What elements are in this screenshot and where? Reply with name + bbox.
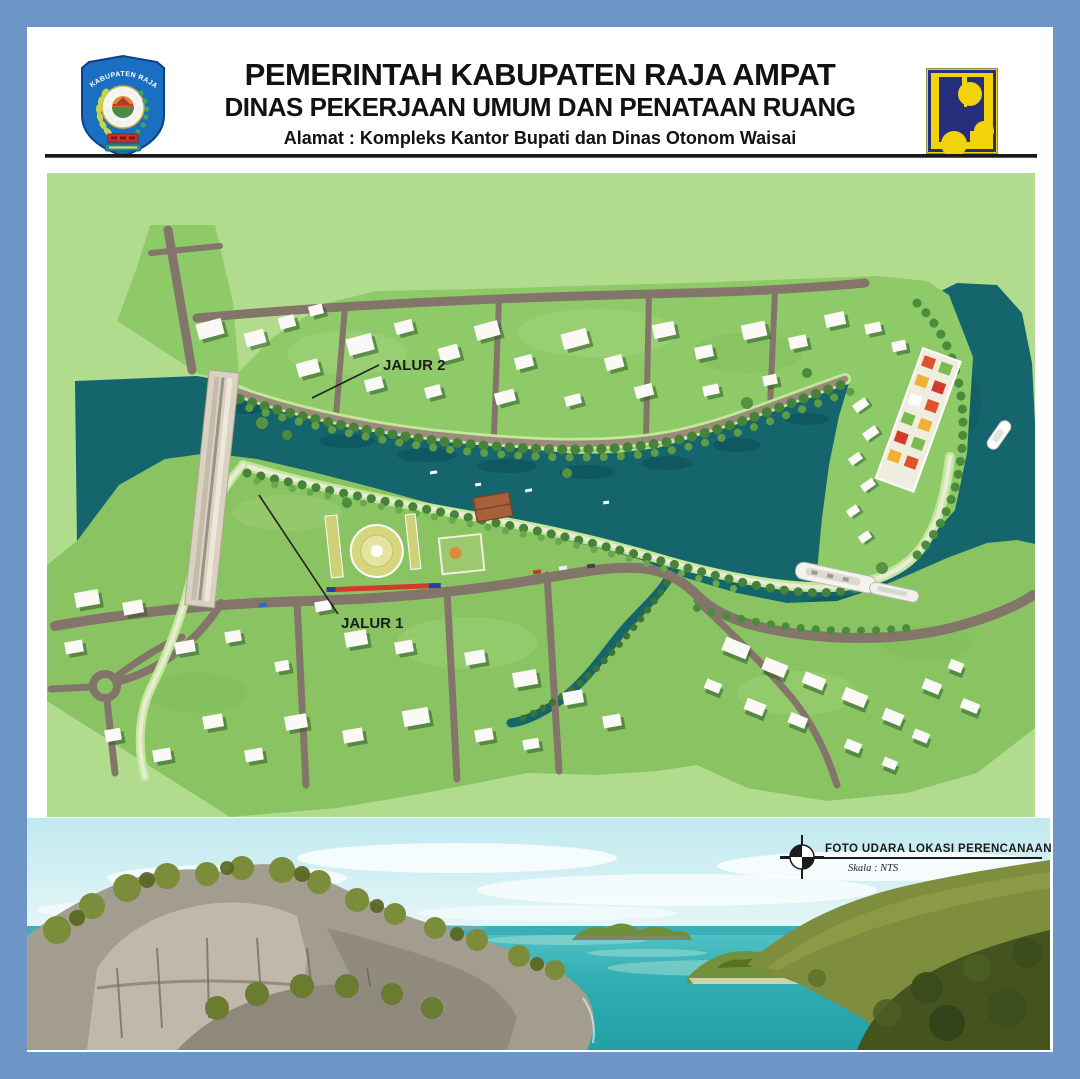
survey-point-icon (780, 835, 824, 879)
pu-ministry-logo (926, 68, 998, 154)
map-label-jalur-1: JALUR 1 (341, 615, 404, 632)
letterhead-titles: PEMERINTAH KABUPATEN RAJA AMPAT DINAS PE… (177, 58, 903, 149)
agency-title: PEMERINTAH KABUPATEN RAJA AMPAT (177, 58, 903, 91)
agency-subtitle: DINAS PEKERJAAN UMUM DAN PENATAAN RUANG (177, 93, 903, 121)
page-frame: KABUPATEN RAJA AMPAT (0, 0, 1080, 1079)
agency-address: Alamat : Kompleks Kantor Bupati dan Dina… (177, 128, 903, 149)
caption-title: FOTO UDARA LOKASI PERENCANAAN (825, 843, 1052, 855)
photo-caption: FOTO UDARA LOKASI PERENCANAAN Skala : NT… (27, 818, 1050, 1050)
document-sheet: KABUPATEN RAJA AMPAT (27, 27, 1053, 1052)
site-plan-render: JALUR 2 JALUR 1 (47, 173, 1035, 817)
pavilion (473, 492, 513, 522)
caption-scale: Skala : NTS (848, 863, 898, 874)
site-plan-map: JALUR 2 JALUR 1 (47, 173, 1035, 817)
raja-ampat-seal-logo: KABUPATEN RAJA AMPAT (77, 53, 169, 159)
header-rule (45, 154, 1037, 158)
map-label-jalur-2: JALUR 2 (383, 357, 446, 374)
aerial-photo: FOTO UDARA LOKASI PERENCANAAN Skala : NT… (27, 818, 1050, 1050)
letterhead: KABUPATEN RAJA AMPAT (27, 27, 1053, 157)
